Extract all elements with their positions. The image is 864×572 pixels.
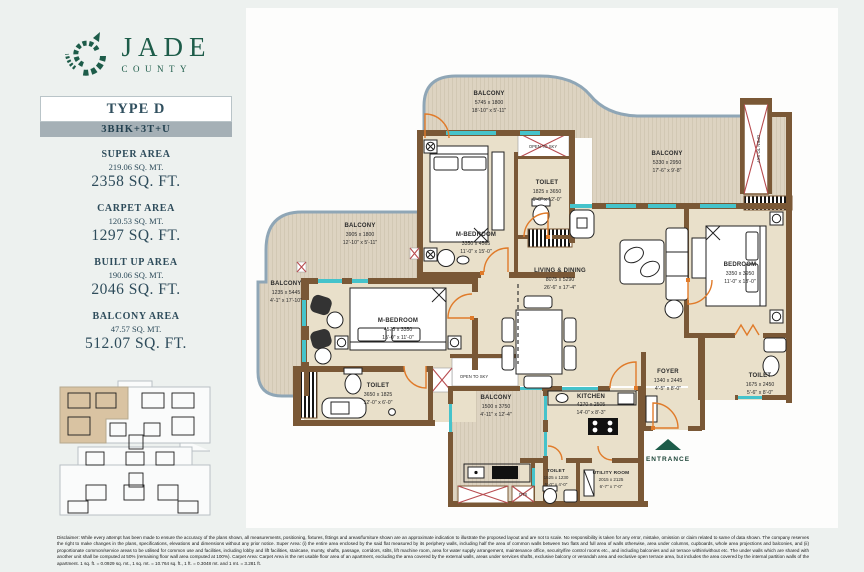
- area-imperial: 2358 SQ. FT.: [40, 173, 232, 191]
- area-metric: 47.57 SQ. MT.: [40, 324, 232, 334]
- svg-text:OTS: OTS: [519, 492, 528, 497]
- svg-text:4'-1" x 17'-10": 4'-1" x 17'-10": [270, 298, 302, 304]
- svg-text:5'-0" x 4'-0": 5'-0" x 4'-0": [545, 482, 568, 487]
- svg-text:18'-10" x 5'-11": 18'-10" x 5'-11": [472, 108, 507, 114]
- svg-text:TOILET: TOILET: [749, 373, 772, 379]
- svg-text:4270 x 2505: 4270 x 2505: [577, 402, 606, 408]
- svg-text:5'-6" x 8'-0": 5'-6" x 8'-0": [747, 390, 773, 396]
- area-metric: 219.06 SQ. MT.: [40, 162, 232, 172]
- sidebar: JADE COUNTY TYPE D 3BHK+3T+U SUPER AREA …: [40, 26, 232, 526]
- floorplan-brochure-page: { "brand": {"name": "JADE", "subname": "…: [0, 0, 864, 572]
- area-metric: 190.06 SQ. MT.: [40, 270, 232, 280]
- disclaimer-text: Disclaimer: While every attempt has been…: [57, 535, 809, 567]
- unit-type-label: TYPE D: [40, 96, 232, 122]
- balcony-area-block: BALCONY AREA 47.57 SQ. MT. 512.07 SQ. FT…: [40, 311, 232, 353]
- svg-text:UTILITY ROOM: UTILITY ROOM: [593, 470, 630, 476]
- svg-text:6'-0" x 12'-0": 6'-0" x 12'-0": [532, 197, 561, 203]
- svg-text:4'-5" x 8'-0": 4'-5" x 8'-0": [655, 386, 681, 392]
- svg-text:3905 x 1800: 3905 x 1800: [346, 232, 375, 238]
- svg-text:M-BEDROOM: M-BEDROOM: [456, 232, 496, 238]
- svg-text:5745 x 1800: 5745 x 1800: [475, 100, 504, 106]
- svg-text:LIVING & DINING: LIVING & DINING: [534, 268, 586, 274]
- svg-text:12'-0" x 6'-0": 12'-0" x 6'-0": [363, 400, 392, 406]
- floor-plan: BALCONY 5745 x 1800 18'-10" x 5'-11" BAL…: [240, 52, 852, 522]
- svg-text:OPEN TO SKY: OPEN TO SKY: [756, 135, 761, 163]
- svg-text:M-BEDROOM: M-BEDROOM: [378, 318, 418, 324]
- svg-text:BALCONY: BALCONY: [651, 151, 682, 157]
- open-to-sky-shaft: [740, 98, 772, 194]
- area-label: BUILT UP AREA: [40, 257, 232, 268]
- svg-text:KITCHEN: KITCHEN: [577, 394, 605, 400]
- area-imperial: 2046 SQ. FT.: [40, 281, 232, 299]
- svg-text:3350 x 3950: 3350 x 3950: [726, 271, 755, 277]
- svg-text:4'-11" x 12'-4": 4'-11" x 12'-4": [480, 412, 512, 418]
- entrance-marker: ENTRANCE: [646, 439, 690, 463]
- svg-text:1525 x 1230: 1525 x 1230: [544, 475, 569, 480]
- svg-text:1340 x 2445: 1340 x 2445: [654, 378, 683, 384]
- svg-text:4575 x 3350: 4575 x 3350: [384, 327, 413, 333]
- svg-text:2015 x 2125: 2015 x 2125: [599, 477, 624, 482]
- svg-text:3350 x 4565: 3350 x 4565: [462, 241, 491, 247]
- area-label: BALCONY AREA: [40, 311, 232, 322]
- svg-text:11'-0" x 13'-0": 11'-0" x 13'-0": [724, 279, 756, 285]
- brand-logo: JADE COUNTY: [40, 26, 232, 82]
- svg-text:BALCONY: BALCONY: [480, 395, 511, 401]
- svg-text:TOILET: TOILET: [367, 383, 390, 389]
- area-imperial: 1297 SQ. FT.: [40, 227, 232, 245]
- area-metric: 120.53 SQ. MT.: [40, 216, 232, 226]
- svg-text:ENTRANCE: ENTRANCE: [646, 456, 690, 463]
- svg-text:3650 x 1825: 3650 x 1825: [364, 392, 393, 398]
- svg-text:BEDROOM: BEDROOM: [724, 262, 757, 268]
- svg-text:5330 x 2950: 5330 x 2950: [653, 160, 682, 166]
- svg-text:1825 x 3650: 1825 x 3650: [533, 189, 562, 195]
- area-statement: SUPER AREA 219.06 SQ. MT. 2358 SQ. FT. C…: [40, 149, 232, 353]
- svg-text:FOYER: FOYER: [657, 369, 679, 375]
- svg-text:BALCONY: BALCONY: [270, 281, 301, 287]
- svg-text:6'-7" x 7'-0": 6'-7" x 7'-0": [600, 484, 623, 489]
- svg-text:BALCONY: BALCONY: [473, 91, 504, 97]
- brand-name: JADE: [122, 34, 212, 61]
- svg-text:OPEN TO SKY: OPEN TO SKY: [529, 144, 557, 149]
- area-imperial: 512.07 SQ. FT.: [40, 335, 232, 353]
- svg-text:OPEN TO SKY: OPEN TO SKY: [460, 374, 488, 379]
- svg-text:12'-10" x 5'-11": 12'-10" x 5'-11": [343, 240, 378, 246]
- svg-text:17'-6" x 9'-8": 17'-6" x 9'-8": [652, 168, 681, 174]
- svg-text:8075 x 5290: 8075 x 5290: [546, 277, 575, 283]
- key-plan: [50, 373, 222, 521]
- svg-text:26'-6" x 17'-4": 26'-6" x 17'-4": [544, 285, 576, 291]
- jade-leaf-icon: [61, 26, 113, 82]
- super-area-block: SUPER AREA 219.06 SQ. MT. 2358 SQ. FT.: [40, 149, 232, 191]
- entrance-arrow-icon: [655, 439, 681, 450]
- unit-config-label: 3BHK+3T+U: [40, 122, 232, 137]
- svg-text:1675 x 2450: 1675 x 2450: [746, 382, 775, 388]
- svg-text:1235 x 5445: 1235 x 5445: [272, 290, 301, 296]
- builtup-area-block: BUILT UP AREA 190.06 SQ. MT. 2046 SQ. FT…: [40, 257, 232, 299]
- svg-text:TOILET: TOILET: [547, 468, 565, 474]
- carpet-area-block: CARPET AREA 120.53 SQ. MT. 1297 SQ. FT.: [40, 203, 232, 245]
- svg-text:1500 x 3750: 1500 x 3750: [482, 404, 511, 410]
- svg-text:11'-0" x 15'-0": 11'-0" x 15'-0": [460, 249, 492, 255]
- svg-text:14'-0" x 8'-3": 14'-0" x 8'-3": [576, 410, 605, 416]
- svg-text:15'-0" x 11'-0": 15'-0" x 11'-0": [382, 335, 414, 341]
- svg-text:BALCONY: BALCONY: [344, 223, 375, 229]
- area-label: CARPET AREA: [40, 203, 232, 214]
- svg-text:TOILET: TOILET: [536, 180, 559, 186]
- brand-subname: COUNTY: [122, 64, 212, 74]
- area-label: SUPER AREA: [40, 149, 232, 160]
